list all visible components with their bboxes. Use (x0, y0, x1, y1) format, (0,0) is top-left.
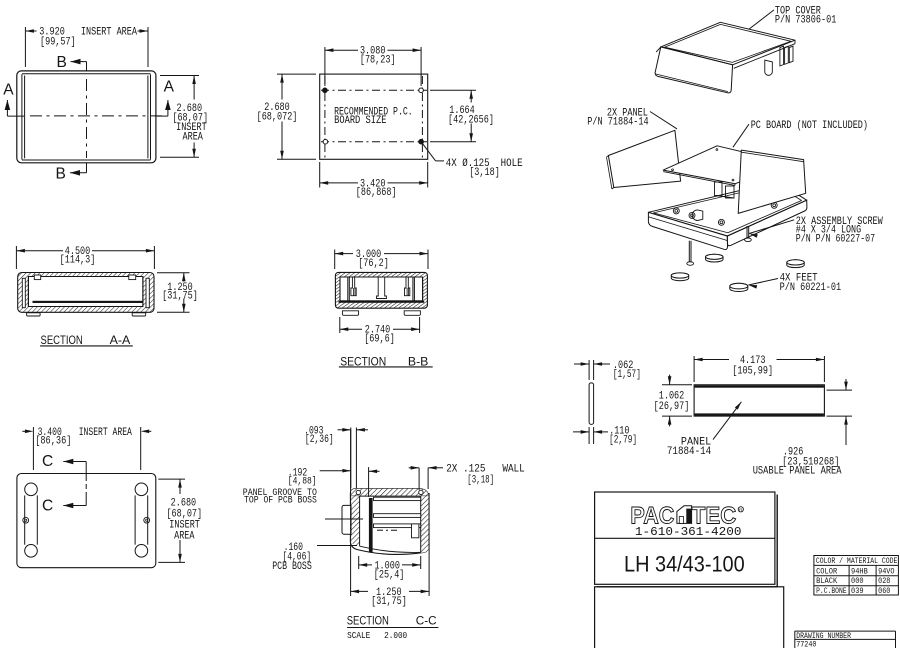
svg-text:[68,07]: [68,07] (166, 508, 202, 520)
svg-text:BLACK: BLACK (816, 577, 837, 586)
svg-text:[78,23]: [78,23] (360, 54, 396, 66)
svg-text:039: 039 (851, 587, 864, 596)
svg-text:LH 34/43-100: LH 34/43-100 (624, 552, 745, 577)
svg-text:SECTION: SECTION (41, 333, 83, 347)
svg-text:[99,57]: [99,57] (40, 37, 76, 49)
svg-text:COLOR / MATERIAL CODE: COLOR / MATERIAL CODE (816, 557, 898, 566)
svg-text:028: 028 (878, 577, 890, 586)
svg-text:[42,2656]: [42,2656] (448, 115, 494, 127)
svg-text:[114,3]: [114,3] (60, 255, 96, 267)
svg-text:[4,88]: [4,88] (288, 476, 317, 488)
svg-text:SECTION: SECTION (347, 614, 389, 628)
svg-text:P/N 73806-01: P/N 73806-01 (775, 15, 837, 27)
svg-text:[1,57]: [1,57] (613, 369, 641, 381)
svg-text:PCB BOSS: PCB BOSS (272, 561, 312, 573)
svg-text:C-C: C-C (416, 614, 437, 628)
svg-text:INSERT AREA: INSERT AREA (81, 27, 137, 39)
svg-text:060: 060 (878, 587, 890, 596)
svg-text:C: C (42, 498, 53, 515)
svg-text:[76,2]: [76,2] (358, 258, 389, 270)
svg-text:1-610-361-4200: 1-610-361-4200 (635, 526, 742, 539)
svg-text:94HB: 94HB (851, 567, 868, 576)
svg-text:[69,6]: [69,6] (364, 333, 395, 345)
svg-text:77240: 77240 (796, 640, 816, 648)
svg-text:SCALE 2.000: SCALE 2.000 (347, 630, 407, 641)
svg-text:AREA: AREA (183, 132, 204, 144)
svg-text:[105,99]: [105,99] (732, 366, 773, 378)
svg-text:PC BOARD (NOT INCLUDED): PC BOARD (NOT INCLUDED) (751, 120, 868, 132)
svg-text:[86,36]: [86,36] (35, 435, 71, 447)
svg-text:P/N 60221-01: P/N 60221-01 (780, 282, 842, 294)
svg-text:USABLE PANEL AREA: USABLE PANEL AREA (753, 466, 842, 478)
svg-text:B: B (56, 165, 66, 182)
svg-text:71884-14: 71884-14 (667, 446, 712, 458)
svg-text:INSERT AREA: INSERT AREA (79, 427, 132, 439)
svg-text:[31,75]: [31,75] (162, 291, 198, 303)
svg-text:[2,79]: [2,79] (609, 434, 637, 446)
svg-text:94VO: 94VO (878, 567, 895, 576)
svg-text:C: C (42, 453, 53, 470)
svg-text:A: A (164, 79, 175, 96)
svg-text:[86,868]: [86,868] (356, 187, 397, 199)
svg-text:000: 000 (851, 577, 864, 586)
svg-text:P/N P/N 60227-07: P/N P/N 60227-07 (796, 233, 875, 245)
svg-text:[68,072]: [68,072] (257, 112, 298, 124)
svg-text:[3,18]: [3,18] (469, 167, 500, 179)
svg-text:A: A (3, 82, 14, 99)
svg-text:COLOR: COLOR (816, 567, 837, 576)
svg-text:TOP OF PCB BOSS: TOP OF PCB BOSS (244, 496, 317, 507)
svg-text:[3,18]: [3,18] (467, 474, 494, 486)
svg-text:[31,75]: [31,75] (371, 596, 407, 608)
svg-text:[26,97]: [26,97] (654, 401, 690, 413)
svg-text:[2,36]: [2,36] (305, 434, 334, 446)
svg-text:B: B (57, 54, 67, 71)
svg-text:[25,4]: [25,4] (374, 569, 405, 581)
svg-text:AREA: AREA (174, 530, 195, 542)
svg-text:A-A: A-A (110, 333, 131, 347)
svg-text:P.C.BONE: P.C.BONE (816, 587, 847, 596)
svg-text:BOARD SIZE: BOARD SIZE (334, 115, 387, 127)
svg-text:P/N 71884-14: P/N 71884-14 (587, 117, 649, 129)
